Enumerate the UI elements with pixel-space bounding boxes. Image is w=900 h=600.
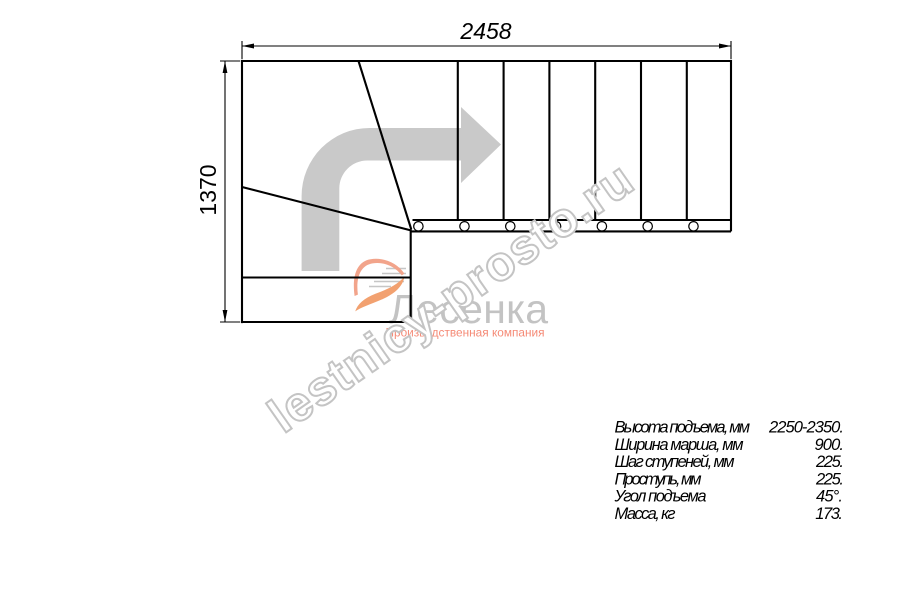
svg-text:900.: 900. xyxy=(815,436,845,454)
svg-text:Масса, кг: Масса, кг xyxy=(615,505,676,523)
svg-text:2458: 2458 xyxy=(459,18,511,44)
svg-text:1370: 1370 xyxy=(195,164,221,215)
svg-text:45°.: 45°. xyxy=(816,488,843,506)
svg-text:Проступь, мм: Проступь, мм xyxy=(615,470,702,488)
svg-text:Ширина марша, мм: Ширина марша, мм xyxy=(615,436,744,454)
svg-text:2250-2350.: 2250-2350. xyxy=(768,419,844,437)
svg-text:Высота подъема, мм: Высота подъема, мм xyxy=(615,419,751,437)
svg-text:225.: 225. xyxy=(815,453,844,471)
svg-text:Угол подъема: Угол подъема xyxy=(614,488,707,506)
svg-text:Шаг ступеней, мм: Шаг ступеней, мм xyxy=(615,453,735,471)
svg-text:173.: 173. xyxy=(815,505,843,523)
svg-text:225.: 225. xyxy=(815,470,844,488)
